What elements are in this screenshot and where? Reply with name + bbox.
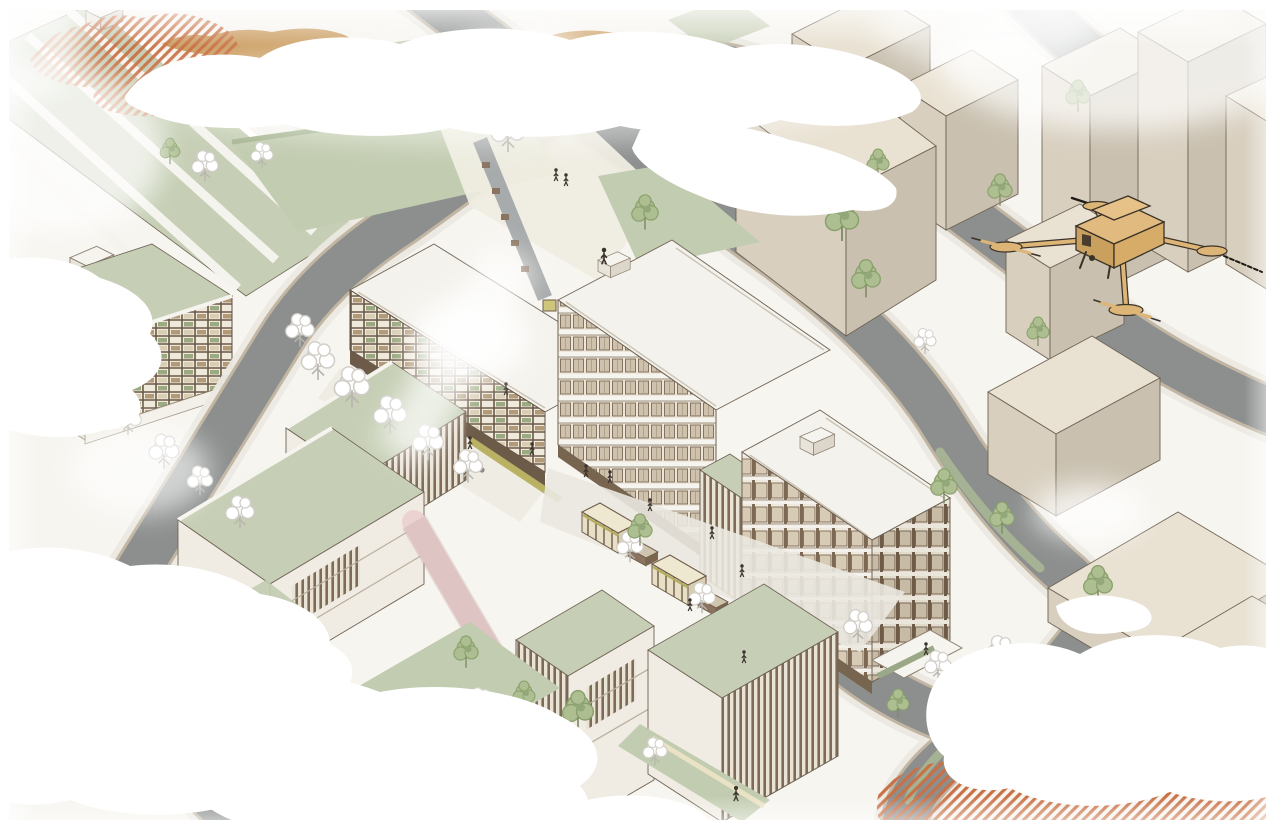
- yellow-kiosk: [543, 300, 556, 311]
- rendering-canvas: Axonometric architectural rendering of a…: [0, 0, 1280, 836]
- axonometric-scene: Axonometric architectural rendering of a…: [0, 0, 1280, 836]
